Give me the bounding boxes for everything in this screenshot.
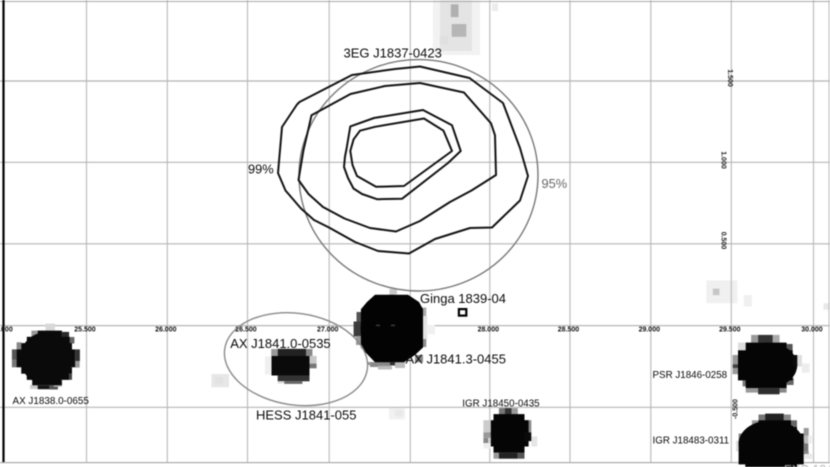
svg-text:AX J1841.0-0535: AX J1841.0-0535 [230, 336, 330, 351]
svg-text:AX J1841.3-0455: AX J1841.3-0455 [406, 351, 506, 366]
svg-text:EXO 1846-031: EXO 1846-031 [784, 462, 830, 467]
svg-text:26.000: 26.000 [155, 327, 177, 334]
svg-text:HESS J1841-055: HESS J1841-055 [256, 408, 356, 423]
svg-text:99%: 99% [248, 162, 274, 177]
svg-text:30.000: 30.000 [801, 327, 823, 334]
svg-text:26.500: 26.500 [235, 327, 257, 334]
svg-text:29.500: 29.500 [719, 327, 741, 334]
svg-text:0.500: 0.500 [720, 232, 727, 250]
svg-text:28.000: 28.000 [478, 327, 500, 334]
svg-text:25.500: 25.500 [74, 327, 96, 334]
svg-text:Ginga 1839-04: Ginga 1839-04 [420, 291, 506, 306]
svg-text:1.500: 1.500 [726, 69, 733, 87]
svg-text:95%: 95% [542, 176, 568, 191]
svg-text:IGR J18483-0311: IGR J18483-0311 [653, 436, 730, 447]
svg-text:AX J1838.0-0655: AX J1838.0-0655 [13, 396, 90, 407]
svg-text:1.000: 1.000 [720, 151, 727, 169]
svg-text:28.500: 28.500 [558, 327, 580, 334]
svg-text:IGR J18450-0435: IGR J18450-0435 [462, 398, 540, 409]
svg-text:-0.500: -0.500 [732, 399, 739, 419]
svg-text:27.000: 27.000 [317, 327, 339, 334]
svg-text:PSR J1846-0258: PSR J1846-0258 [653, 370, 728, 381]
svg-text:29.000: 29.000 [639, 327, 661, 334]
svg-text:25.000: 25.000 [0, 327, 13, 334]
svg-text:3EG J1837-0423: 3EG J1837-0423 [344, 45, 442, 60]
